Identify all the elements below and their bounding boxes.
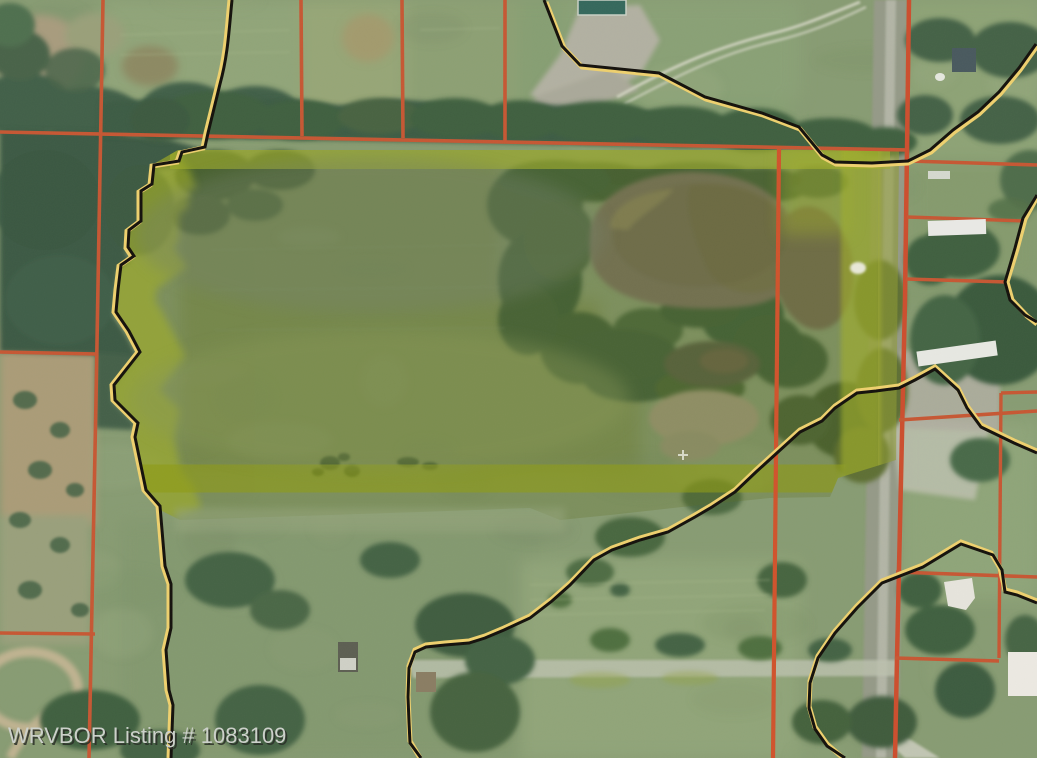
svg-text:WRVBOR Listing # 1083109: WRVBOR Listing # 1083109 — [8, 723, 286, 748]
